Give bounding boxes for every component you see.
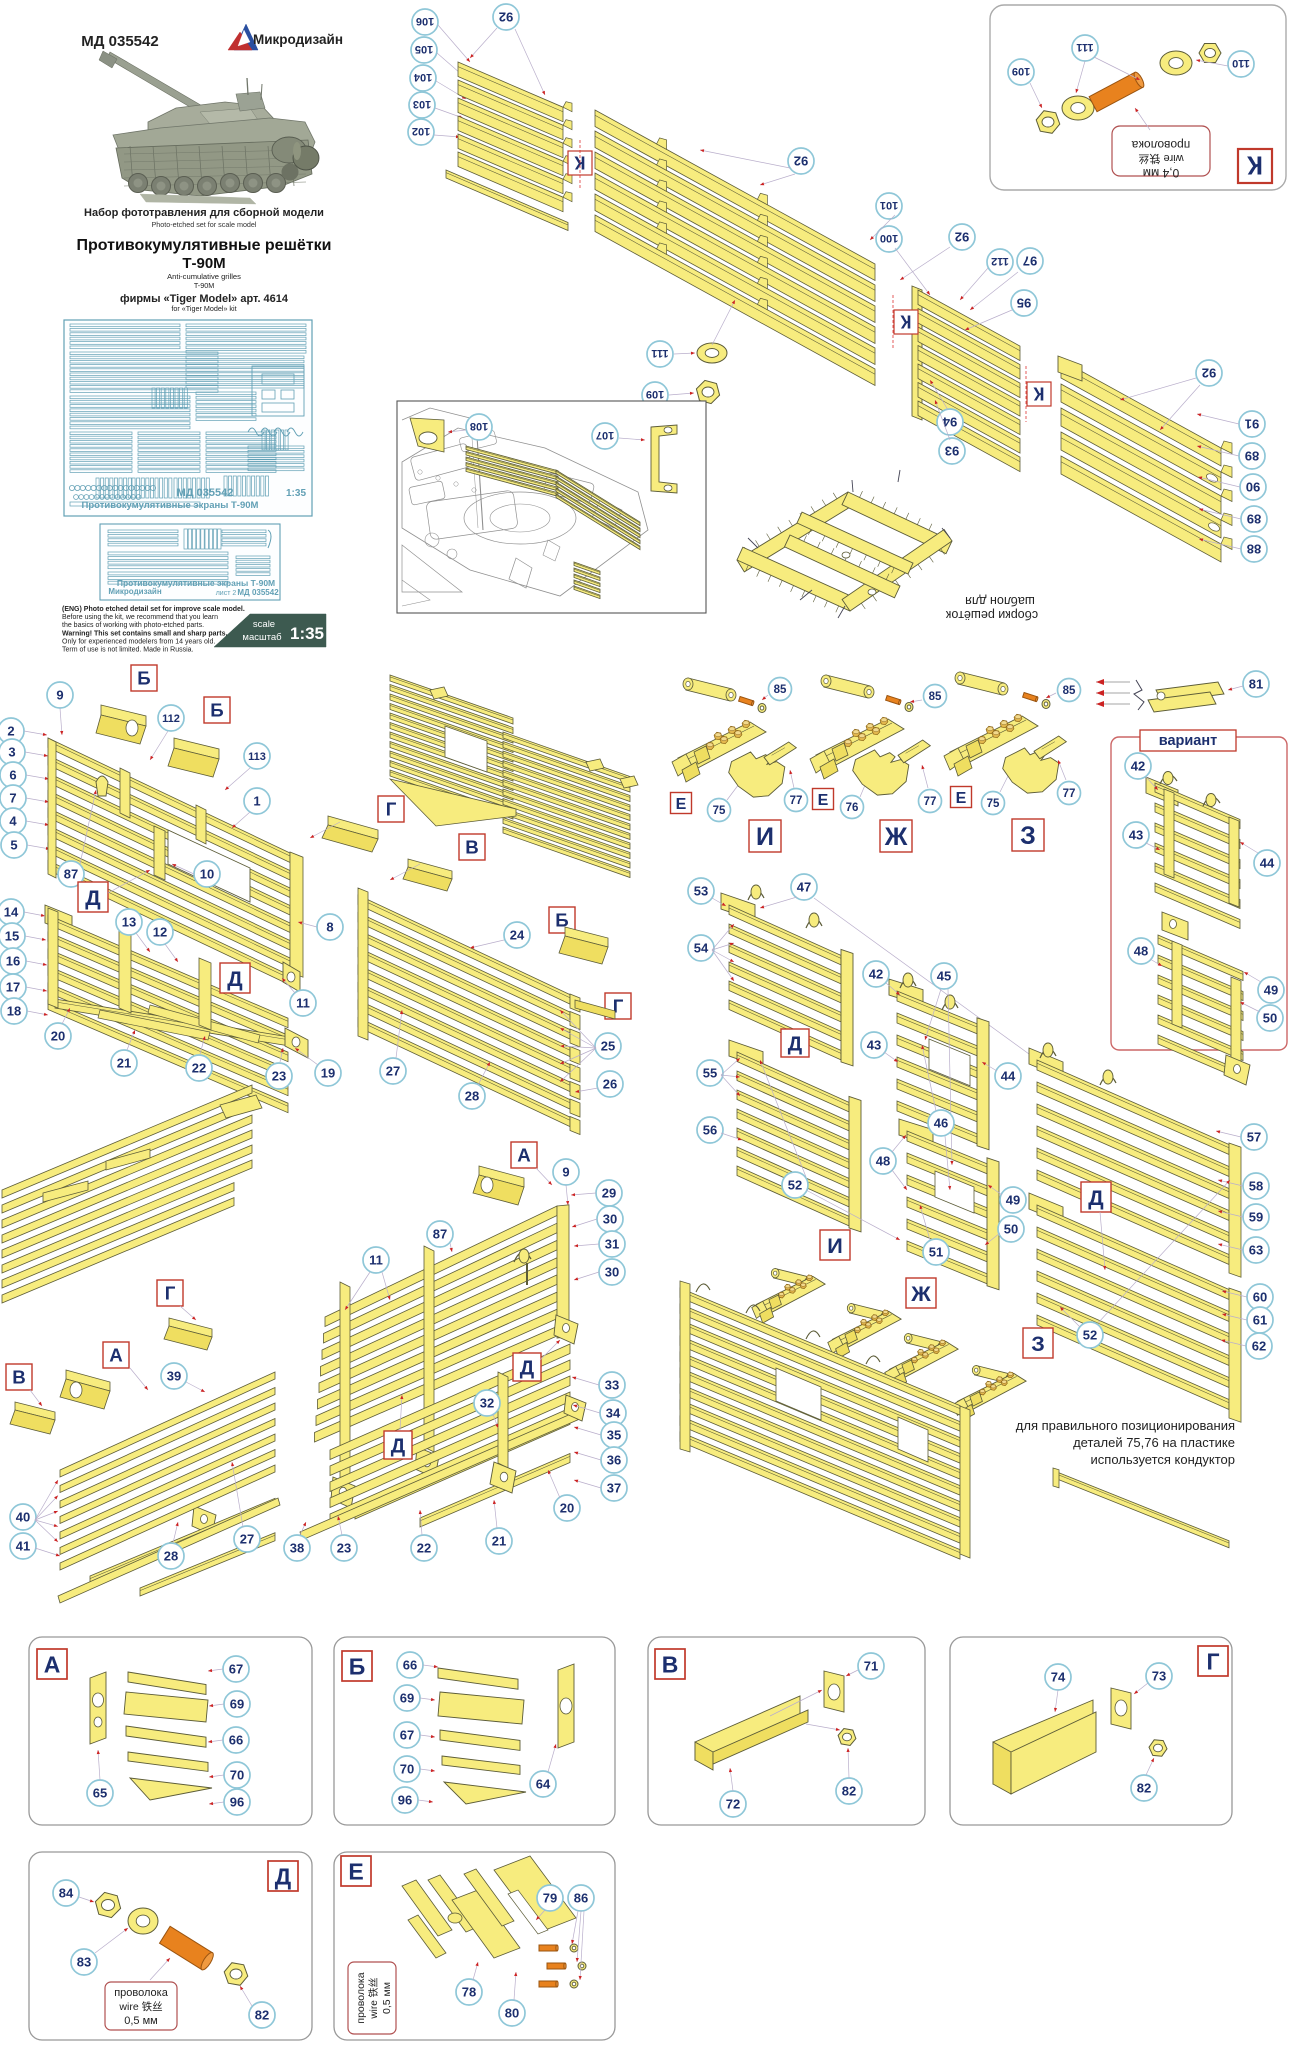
svg-text:вариант: вариант xyxy=(1159,733,1217,749)
svg-text:В: В xyxy=(12,1367,26,1388)
svg-text:деталей 75,76 на пластике: деталей 75,76 на пластике xyxy=(1073,1435,1235,1450)
svg-text:В: В xyxy=(662,1651,679,1677)
svg-text:9: 9 xyxy=(562,1165,569,1180)
svg-text:36: 36 xyxy=(607,1453,621,1468)
svg-text:111: 111 xyxy=(651,347,668,359)
svg-text:42: 42 xyxy=(869,967,883,982)
svg-text:79: 79 xyxy=(543,1891,557,1906)
svg-text:4: 4 xyxy=(9,814,17,829)
svg-text:38: 38 xyxy=(290,1541,304,1556)
svg-text:А: А xyxy=(517,1145,531,1166)
svg-text:50: 50 xyxy=(1004,1222,1018,1237)
svg-text:96: 96 xyxy=(398,1793,412,1808)
svg-text:20: 20 xyxy=(51,1029,65,1044)
svg-text:71: 71 xyxy=(864,1659,878,1674)
svg-text:wire 铁丝: wire 铁丝 xyxy=(1138,152,1184,165)
svg-text:Микродизайн: Микродизайн xyxy=(108,587,161,596)
svg-text:the basics of working with pho: the basics of working with photo-etched … xyxy=(62,622,204,629)
svg-text:76: 76 xyxy=(846,802,859,814)
svg-text:Микродизайн: Микродизайн xyxy=(253,32,343,47)
svg-text:59: 59 xyxy=(1249,1210,1263,1225)
svg-text:92: 92 xyxy=(1202,365,1216,380)
svg-text:74: 74 xyxy=(1051,1670,1066,1685)
svg-text:112: 112 xyxy=(162,713,180,725)
svg-text:Противокумулятивные решётки: Противокумулятивные решётки xyxy=(77,237,332,254)
svg-text:78: 78 xyxy=(462,1985,476,2000)
svg-text:Е: Е xyxy=(676,796,687,813)
svg-text:12: 12 xyxy=(153,925,167,940)
svg-text:82: 82 xyxy=(842,1784,856,1799)
svg-text:95: 95 xyxy=(1017,295,1031,310)
svg-text:МД 035542: МД 035542 xyxy=(237,588,279,597)
svg-text:29: 29 xyxy=(602,1186,616,1201)
svg-text:93: 93 xyxy=(945,443,959,458)
svg-text:87: 87 xyxy=(64,867,78,882)
svg-text:46: 46 xyxy=(934,1116,948,1131)
svg-text:80: 80 xyxy=(505,2006,519,2021)
svg-text:70: 70 xyxy=(230,1768,244,1783)
svg-text:108: 108 xyxy=(470,420,488,432)
svg-text:102: 102 xyxy=(412,125,430,137)
svg-text:Only for experienced modelers: Only for experienced modelers from 14 ye… xyxy=(62,638,215,645)
svg-text:58: 58 xyxy=(1249,1179,1263,1194)
svg-text:К: К xyxy=(1247,151,1263,181)
svg-text:64: 64 xyxy=(536,1777,551,1792)
svg-text:И: И xyxy=(827,1233,843,1258)
svg-text:97: 97 xyxy=(1023,253,1037,268)
svg-text:85: 85 xyxy=(929,691,942,703)
svg-text:101: 101 xyxy=(880,199,898,211)
svg-text:91: 91 xyxy=(1245,416,1259,431)
svg-text:105: 105 xyxy=(415,43,433,55)
svg-text:К: К xyxy=(1033,384,1045,404)
svg-text:26: 26 xyxy=(603,1077,617,1092)
svg-text:МД 035542: МД 035542 xyxy=(177,487,234,499)
svg-text:Before using the kit, we recom: Before using the kit, we recommend that … xyxy=(62,614,218,621)
svg-text:1: 1 xyxy=(253,794,260,809)
svg-text:Г: Г xyxy=(1206,1648,1219,1674)
svg-text:104: 104 xyxy=(413,71,432,83)
svg-text:92: 92 xyxy=(499,9,513,24)
svg-text:17: 17 xyxy=(6,980,20,995)
svg-text:20: 20 xyxy=(560,1501,574,1516)
svg-text:А: А xyxy=(44,1651,61,1677)
svg-text:48: 48 xyxy=(1134,944,1148,959)
svg-text:77: 77 xyxy=(1063,788,1076,800)
svg-text:88: 88 xyxy=(1247,542,1261,557)
svg-text:Противокумулятивные экраны Т-9: Противокумулятивные экраны Т-90М xyxy=(82,500,259,511)
svg-text:Ж: Ж xyxy=(884,823,908,851)
svg-text:47: 47 xyxy=(797,880,811,895)
svg-text:110: 110 xyxy=(1232,57,1250,69)
svg-text:1:35: 1:35 xyxy=(286,488,306,499)
svg-text:51: 51 xyxy=(929,1245,943,1260)
svg-text:wire 铁丝: wire 铁丝 xyxy=(118,2000,162,2013)
svg-text:З: З xyxy=(1031,1331,1045,1356)
svg-text:75: 75 xyxy=(713,805,726,817)
svg-text:15: 15 xyxy=(5,929,19,944)
svg-text:66: 66 xyxy=(229,1733,243,1748)
svg-text:85: 85 xyxy=(1063,685,1076,697)
svg-text:89: 89 xyxy=(1245,448,1259,463)
svg-text:wire 铁丝: wire 铁丝 xyxy=(367,1977,380,2019)
svg-text:33: 33 xyxy=(605,1378,619,1393)
svg-text:82: 82 xyxy=(1137,1781,1151,1796)
svg-text:Д: Д xyxy=(85,885,100,910)
svg-text:Д: Д xyxy=(788,1033,803,1055)
svg-text:73: 73 xyxy=(1152,1669,1166,1684)
svg-text:используется кондуктор: используется кондуктор xyxy=(1091,1452,1235,1467)
svg-text:Anti-cumulative grilles: Anti-cumulative grilles xyxy=(167,272,241,281)
svg-text:Е: Е xyxy=(956,790,967,807)
svg-text:0,5 мм: 0,5 мм xyxy=(124,2015,157,2027)
svg-text:0,4 мм: 0,4 мм xyxy=(1143,166,1180,180)
svg-text:18: 18 xyxy=(7,1004,21,1019)
svg-text:проволока: проволока xyxy=(114,1987,169,1999)
svg-text:30: 30 xyxy=(605,1265,619,1280)
svg-text:52: 52 xyxy=(1083,1328,1097,1343)
svg-text:39: 39 xyxy=(167,1369,181,1384)
svg-text:55: 55 xyxy=(703,1066,717,1081)
svg-text:66: 66 xyxy=(403,1658,417,1673)
svg-text:37: 37 xyxy=(607,1481,621,1496)
svg-text:масштаб: масштаб xyxy=(242,632,282,643)
svg-text:for «Tiger Model» kit: for «Tiger Model» kit xyxy=(171,304,236,313)
svg-text:49: 49 xyxy=(1264,983,1278,998)
svg-text:109: 109 xyxy=(1012,65,1030,77)
svg-text:28: 28 xyxy=(465,1089,479,1104)
svg-text:Е: Е xyxy=(348,1858,363,1884)
svg-text:сборки решёток: сборки решёток xyxy=(945,608,1038,622)
svg-text:22: 22 xyxy=(417,1541,431,1556)
svg-text:87: 87 xyxy=(433,1227,447,1242)
svg-text:Г: Г xyxy=(165,1283,176,1304)
svg-text:МД 035542: МД 035542 xyxy=(81,33,158,50)
svg-text:50: 50 xyxy=(1263,1011,1277,1026)
svg-text:для правильного позиционирован: для правильного позиционирования xyxy=(1016,1418,1235,1433)
svg-text:3: 3 xyxy=(8,745,15,760)
svg-text:11: 11 xyxy=(369,1253,383,1268)
svg-text:Д: Д xyxy=(275,1863,291,1889)
svg-text:63: 63 xyxy=(1249,1243,1263,1258)
svg-text:82: 82 xyxy=(255,2008,269,2023)
svg-text:42: 42 xyxy=(1131,759,1145,774)
svg-text:22: 22 xyxy=(192,1061,206,1076)
svg-text:23: 23 xyxy=(272,1069,286,1084)
svg-text:Набор фототравления для сборно: Набор фототравления для сборной модели xyxy=(84,207,324,219)
svg-text:проволока: проволока xyxy=(1131,138,1190,152)
svg-text:69: 69 xyxy=(230,1697,244,1712)
svg-text:45: 45 xyxy=(937,969,951,984)
svg-text:23: 23 xyxy=(337,1541,351,1556)
svg-text:Ж: Ж xyxy=(910,1281,931,1306)
svg-text:83: 83 xyxy=(77,1955,91,1970)
svg-text:31: 31 xyxy=(605,1237,619,1252)
svg-text:27: 27 xyxy=(240,1532,254,1547)
svg-text:86: 86 xyxy=(574,1891,588,1906)
svg-text:54: 54 xyxy=(694,941,709,956)
svg-text:шаблон для: шаблон для xyxy=(965,594,1035,608)
svg-text:Б: Б xyxy=(137,668,150,689)
svg-text:57: 57 xyxy=(1247,1130,1261,1145)
svg-text:Г: Г xyxy=(386,799,397,820)
svg-text:Д: Д xyxy=(1088,1185,1103,1210)
svg-text:6: 6 xyxy=(9,768,16,783)
svg-text:0,5 мм: 0,5 мм xyxy=(381,1982,393,2014)
svg-text:10: 10 xyxy=(200,867,214,882)
svg-text:103: 103 xyxy=(413,98,431,110)
svg-text:24: 24 xyxy=(510,928,525,943)
svg-text:35: 35 xyxy=(607,1428,621,1443)
svg-text:5: 5 xyxy=(10,838,17,853)
svg-text:Б: Б xyxy=(210,700,223,721)
svg-text:Warning! This set contains sma: Warning! This set contains small and sha… xyxy=(62,630,227,637)
svg-text:94: 94 xyxy=(942,414,957,429)
svg-text:53: 53 xyxy=(694,884,708,899)
svg-text:25: 25 xyxy=(601,1039,615,1054)
svg-text:41: 41 xyxy=(16,1539,30,1554)
svg-text:9: 9 xyxy=(56,688,63,703)
svg-text:61: 61 xyxy=(1253,1313,1267,1328)
svg-text:75: 75 xyxy=(987,798,1000,810)
svg-text:Term of use is not limited. Ma: Term of use is not limited. Made in Russ… xyxy=(62,647,194,654)
svg-text:лист 2: лист 2 xyxy=(216,590,237,597)
svg-text:Д: Д xyxy=(520,1357,535,1379)
svg-text:52: 52 xyxy=(788,1178,802,1193)
svg-text:К: К xyxy=(900,312,912,332)
svg-text:56: 56 xyxy=(703,1123,717,1138)
svg-text:85: 85 xyxy=(774,684,787,696)
svg-text:96: 96 xyxy=(230,1795,244,1810)
svg-text:И: И xyxy=(756,823,774,851)
svg-text:112: 112 xyxy=(991,255,1009,267)
svg-text:111: 111 xyxy=(1076,41,1093,53)
svg-text:1:35: 1:35 xyxy=(290,624,324,643)
svg-text:77: 77 xyxy=(924,796,937,808)
svg-text:30: 30 xyxy=(603,1212,617,1227)
svg-text:62: 62 xyxy=(1252,1339,1266,1354)
svg-text:Б: Б xyxy=(349,1653,366,1679)
svg-text:19: 19 xyxy=(321,1066,335,1081)
svg-text:14: 14 xyxy=(4,905,19,920)
svg-text:Photo-etched set for scale mod: Photo-etched set for scale model xyxy=(151,220,256,229)
svg-text:109: 109 xyxy=(646,388,664,400)
svg-text:100: 100 xyxy=(880,232,898,244)
svg-text:16: 16 xyxy=(6,954,20,969)
svg-text:21: 21 xyxy=(117,1056,131,1071)
svg-text:44: 44 xyxy=(1260,856,1275,871)
svg-text:90: 90 xyxy=(1246,479,1260,494)
svg-text:69: 69 xyxy=(400,1691,414,1706)
svg-text:44: 44 xyxy=(1001,1069,1016,1084)
svg-text:67: 67 xyxy=(400,1728,414,1743)
svg-text:70: 70 xyxy=(400,1762,414,1777)
svg-text:З: З xyxy=(1020,822,1036,850)
svg-text:60: 60 xyxy=(1253,1290,1267,1305)
svg-text:проволока: проволока xyxy=(355,1972,367,2023)
svg-text:43: 43 xyxy=(867,1038,881,1053)
svg-text:89: 89 xyxy=(1247,512,1261,527)
svg-text:67: 67 xyxy=(229,1662,243,1677)
svg-text:Д: Д xyxy=(391,1435,406,1457)
svg-text:7: 7 xyxy=(9,791,16,806)
svg-text:40: 40 xyxy=(16,1510,30,1525)
svg-text:27: 27 xyxy=(386,1064,400,1079)
svg-text:107: 107 xyxy=(596,429,614,441)
svg-text:Е: Е xyxy=(818,792,829,809)
svg-text:T-90M: T-90M xyxy=(194,281,214,290)
svg-text:Т-90М: Т-90М xyxy=(182,255,225,272)
svg-text:11: 11 xyxy=(296,996,310,1011)
svg-text:48: 48 xyxy=(876,1154,890,1169)
svg-text:21: 21 xyxy=(492,1534,506,1549)
svg-text:92: 92 xyxy=(955,229,969,244)
svg-text:106: 106 xyxy=(416,15,434,27)
svg-text:В: В xyxy=(465,837,479,858)
svg-text:49: 49 xyxy=(1006,1193,1020,1208)
svg-text:34: 34 xyxy=(606,1406,621,1421)
svg-text:13: 13 xyxy=(122,915,136,930)
svg-text:(ENG) Photo etched detail set: (ENG) Photo etched detail set for improv… xyxy=(62,606,245,613)
svg-text:92: 92 xyxy=(794,153,808,168)
svg-text:84: 84 xyxy=(59,1886,74,1901)
svg-text:65: 65 xyxy=(93,1786,107,1801)
svg-text:113: 113 xyxy=(248,751,266,763)
svg-text:81: 81 xyxy=(1249,677,1263,692)
svg-text:2: 2 xyxy=(7,724,14,739)
svg-text:72: 72 xyxy=(726,1797,740,1812)
svg-text:28: 28 xyxy=(164,1549,178,1564)
svg-text:А: А xyxy=(109,1345,123,1366)
svg-text:8: 8 xyxy=(326,920,333,935)
svg-text:scale: scale xyxy=(253,619,275,630)
svg-text:32: 32 xyxy=(480,1396,494,1411)
svg-text:43: 43 xyxy=(1129,828,1143,843)
svg-text:Д: Д xyxy=(227,966,242,991)
svg-text:77: 77 xyxy=(790,795,803,807)
svg-text:К: К xyxy=(574,153,586,173)
